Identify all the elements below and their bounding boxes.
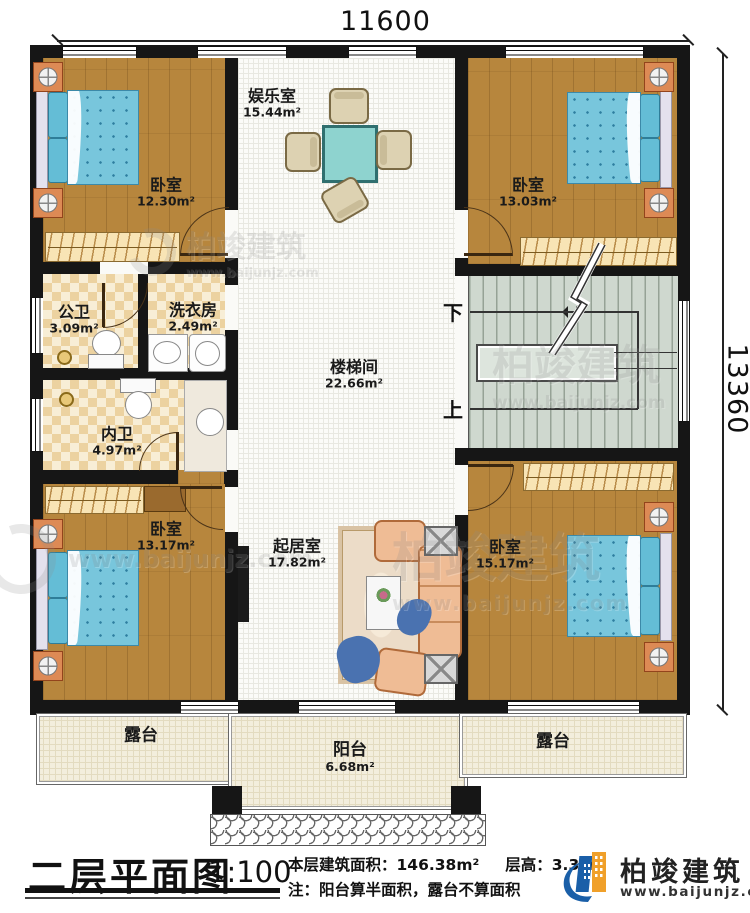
window xyxy=(348,46,417,58)
stair-down-label: 下 xyxy=(443,297,463,326)
brand-logo-icon xyxy=(558,850,616,906)
watermark-url: www.baijunjz.com xyxy=(392,591,628,615)
shower-head-icon xyxy=(57,350,72,365)
nightstand xyxy=(644,188,674,218)
room-label-entertainment: 娱乐室15.44m² xyxy=(243,87,301,118)
pillar xyxy=(212,786,242,816)
pillow xyxy=(640,586,660,635)
room-label-bedroom-br: 卧室15.17m² xyxy=(476,538,534,569)
wardrobe xyxy=(523,463,674,491)
roof-tiles xyxy=(210,814,486,846)
watermark-logo-icon xyxy=(0,512,68,605)
door-leaf xyxy=(176,432,179,470)
sink-icon xyxy=(153,341,181,364)
room-label-terrace-right: 露台 xyxy=(536,733,570,752)
side-table xyxy=(424,654,458,684)
lamp-icon xyxy=(39,194,58,213)
note-text: 注：阳台算半面积，露台不算面积 xyxy=(288,878,521,900)
room-label-private-bath: 内卫4.97m² xyxy=(92,425,141,456)
pillow xyxy=(640,94,660,138)
nightstand xyxy=(33,188,63,218)
bed xyxy=(566,90,672,186)
watermark-name: 柏竣建筑 xyxy=(186,222,319,266)
toilet-tank xyxy=(88,354,124,369)
room-label-laundry: 洗衣房2.49m² xyxy=(168,301,217,332)
watermark: 柏竣建筑 www.baijunjz.com xyxy=(492,332,666,413)
door-leaf xyxy=(464,253,512,256)
sink-icon xyxy=(196,408,224,436)
room-label-terrace-left: 露台 xyxy=(124,727,158,746)
lamp-icon xyxy=(650,194,669,213)
lamp-icon xyxy=(650,508,669,527)
lamp-icon xyxy=(39,68,58,87)
nightstand xyxy=(33,62,63,92)
room-label-stairhall: 楼梯间22.66m² xyxy=(325,358,383,389)
dimension-top-label: 11600 xyxy=(340,6,431,37)
nightstand xyxy=(644,642,674,672)
window xyxy=(678,300,689,422)
brand-url: www.baijunjz.com xyxy=(620,884,750,900)
bed-headboard xyxy=(36,88,48,189)
window xyxy=(197,46,287,58)
game-table xyxy=(322,125,378,183)
bed-headboard xyxy=(660,533,672,641)
lamp-icon xyxy=(39,657,58,676)
watermark-name: 柏竣建筑 xyxy=(492,332,666,393)
lamp-icon xyxy=(650,68,669,87)
door-leaf xyxy=(180,486,222,489)
pillar xyxy=(451,786,481,816)
chair xyxy=(285,132,321,172)
window xyxy=(31,398,43,452)
bed-headboard xyxy=(660,90,672,188)
armchair xyxy=(373,647,431,698)
bed-quilt xyxy=(567,92,641,184)
watermark: 柏竣建筑 www.baijunjz.com xyxy=(128,222,319,281)
dimension-right-label: 13360 xyxy=(722,344,750,424)
room-label-living: 起居室17.82m² xyxy=(268,537,326,568)
shower-head-icon xyxy=(59,392,74,407)
pillow xyxy=(48,598,68,644)
title-underline-thin xyxy=(25,897,280,899)
area-info-row: 本层建筑面积：146.38m² 层高：3.3m xyxy=(288,853,595,875)
wardrobe xyxy=(45,486,144,514)
floor-plan-page: 11600 13360 xyxy=(0,0,750,913)
pillow xyxy=(48,92,68,138)
toilet-icon xyxy=(125,391,152,419)
bed xyxy=(36,88,140,187)
drawing-scale: 1:100 xyxy=(208,855,292,889)
door-leaf xyxy=(468,464,513,467)
watermark-url: www.baijunjz.com xyxy=(186,266,319,281)
window xyxy=(31,297,43,354)
floor-area-text: 本层建筑面积：146.38m² xyxy=(288,853,479,875)
room-label-bedroom-tr: 卧室13.03m² xyxy=(499,176,557,207)
nightstand xyxy=(33,651,63,681)
door-opening xyxy=(178,470,224,484)
door-opening xyxy=(225,285,238,330)
room-label-balcony: 阳台6.68m² xyxy=(325,741,374,773)
washer-drum xyxy=(195,341,220,366)
window xyxy=(505,46,644,58)
room-label-bedroom-tl: 卧室12.30m² xyxy=(137,176,195,207)
bed-quilt xyxy=(67,90,139,185)
lamp-icon xyxy=(650,648,669,667)
pillow xyxy=(640,537,660,586)
watermark-url: www.baijunjz.com xyxy=(492,393,666,413)
room-label-bedroom-bl: 卧室13.17m² xyxy=(137,520,195,551)
pillow xyxy=(48,138,68,184)
dimension-top-line xyxy=(57,40,689,42)
stair-up-label: 上 xyxy=(443,394,463,423)
room-label-public-bath: 公卫3.09m² xyxy=(49,303,98,334)
nightstand xyxy=(644,62,674,92)
nightstand xyxy=(644,502,674,532)
door-leaf xyxy=(102,283,105,327)
chair xyxy=(376,130,412,170)
terrace-left xyxy=(36,713,237,785)
window xyxy=(62,46,137,58)
chair xyxy=(329,88,369,124)
door-opening xyxy=(455,465,468,515)
watermark-logo-icon xyxy=(120,220,184,284)
pillow xyxy=(640,138,660,182)
terrace-right xyxy=(459,713,687,778)
